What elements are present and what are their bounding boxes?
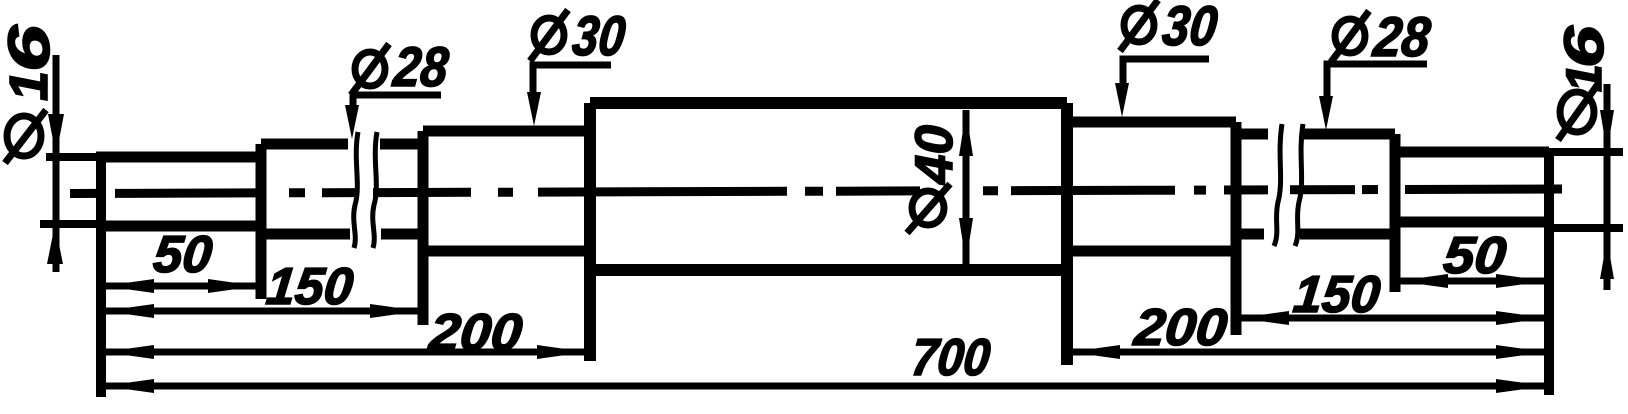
svg-text:150: 150	[1291, 266, 1383, 324]
svg-text:200: 200	[426, 304, 525, 362]
svg-text:200: 200	[1131, 299, 1230, 357]
svg-text:150: 150	[264, 258, 356, 316]
svg-text:6: 6	[0, 24, 62, 72]
svg-text:30: 30	[570, 4, 629, 67]
svg-text:40: 40	[905, 125, 964, 185]
svg-text:6: 6	[1553, 25, 1615, 68]
svg-text:1: 1	[0, 71, 59, 101]
svg-text:50: 50	[151, 226, 215, 284]
svg-text:1: 1	[1556, 64, 1612, 92]
svg-text:28: 28	[1370, 5, 1434, 68]
svg-text:28: 28	[390, 35, 452, 98]
svg-text:30: 30	[1160, 0, 1221, 57]
svg-text:50: 50	[1441, 227, 1509, 285]
svg-text:700: 700	[909, 329, 993, 387]
